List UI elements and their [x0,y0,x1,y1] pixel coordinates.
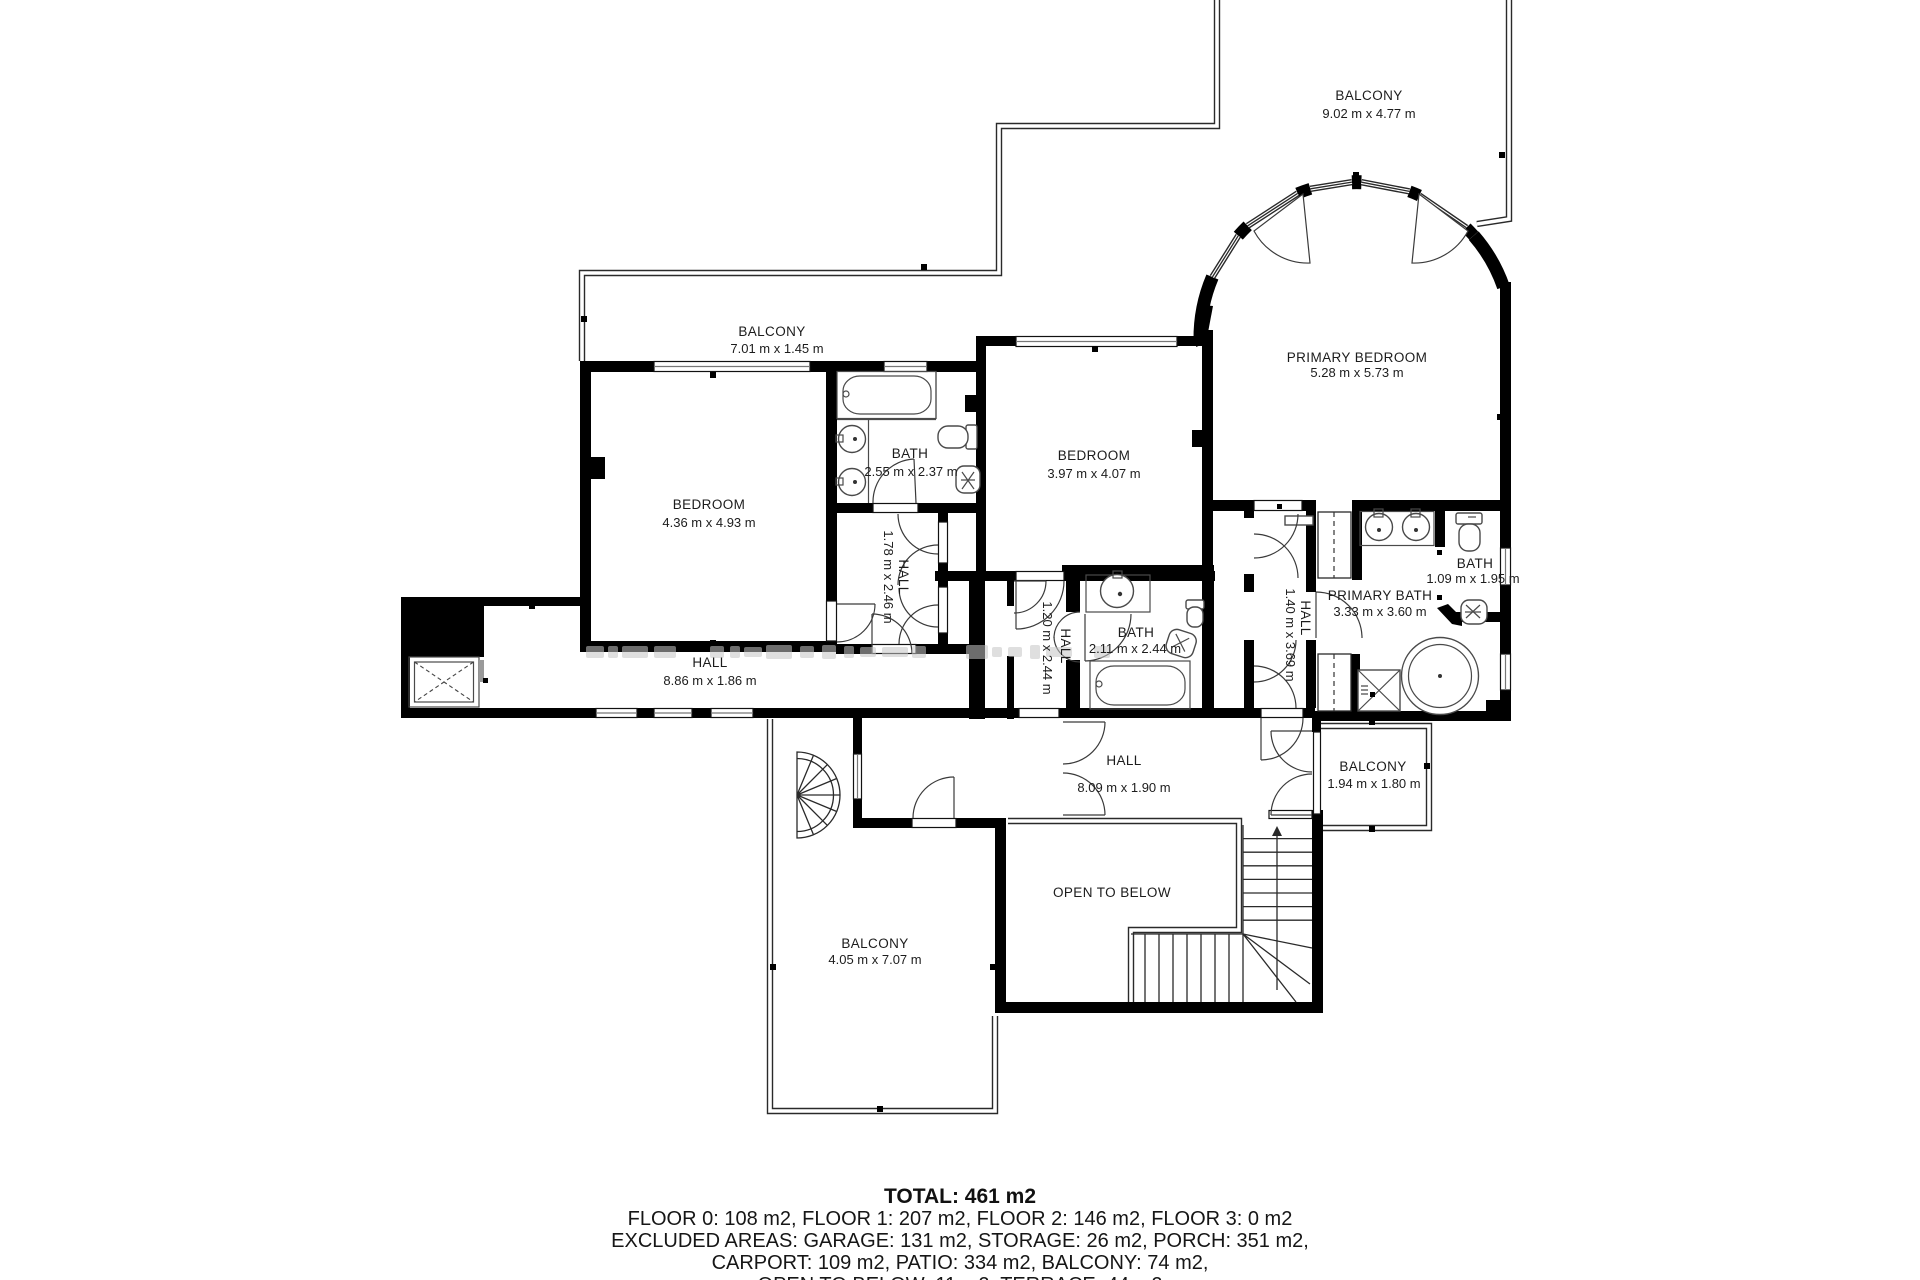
svg-text:3.33 m x 3.60 m: 3.33 m x 3.60 m [1333,604,1426,619]
svg-text:BATH: BATH [1457,556,1494,571]
svg-text:BATH: BATH [892,446,929,461]
svg-text:BEDROOM: BEDROOM [673,497,746,512]
svg-text:OPEN TO BELOW: 11 m2, TERRACE:: OPEN TO BELOW: 11 m2, TERRACE: 44 m2 [758,1274,1163,1280]
svg-text:HALL: HALL [692,655,727,670]
svg-text:PRIMARY BEDROOM: PRIMARY BEDROOM [1287,350,1428,365]
svg-text:FLOOR 0: 108 m2, FLOOR 1: 207: FLOOR 0: 108 m2, FLOOR 1: 207 m2, FLOOR … [628,1208,1293,1230]
svg-text:HALL: HALL [1058,628,1073,663]
svg-text:HALL: HALL [1106,753,1141,768]
svg-text:1.40 m x 3.69 m: 1.40 m x 3.69 m [1283,588,1298,681]
svg-text:CARPORT: 109 m2, PATIO: 334 m2: CARPORT: 109 m2, PATIO: 334 m2, BALCONY:… [712,1252,1209,1274]
svg-text:4.36 m x 4.93 m: 4.36 m x 4.93 m [662,515,755,530]
svg-text:BEDROOM: BEDROOM [1058,448,1131,463]
svg-text:TOTAL: 461 m2: TOTAL: 461 m2 [884,1185,1036,1208]
svg-text:BALCONY: BALCONY [1335,88,1402,103]
svg-text:1.94 m x 1.80 m: 1.94 m x 1.80 m [1327,776,1420,791]
svg-text:8.09 m x 1.90 m: 8.09 m x 1.90 m [1077,780,1170,795]
svg-text:2.55 m x 2.37 m: 2.55 m x 2.37 m [864,464,957,479]
svg-text:3.97 m x 4.07 m: 3.97 m x 4.07 m [1047,466,1140,481]
svg-text:1.20 m x 2.44 m: 1.20 m x 2.44 m [1040,601,1055,694]
svg-text:1.09 m x 1.95 m: 1.09 m x 1.95 m [1426,571,1519,586]
svg-text:BALCONY: BALCONY [841,936,908,951]
svg-text:7.01 m x 1.45 m: 7.01 m x 1.45 m [730,341,823,356]
svg-text:BALCONY: BALCONY [1339,759,1406,774]
svg-text:5.28 m x 5.73 m: 5.28 m x 5.73 m [1310,365,1403,380]
svg-text:OPEN TO BELOW: OPEN TO BELOW [1053,885,1171,900]
svg-text:BATH: BATH [1118,625,1155,640]
svg-text:HALL: HALL [1298,600,1313,635]
svg-text:9.02 m x 4.77 m: 9.02 m x 4.77 m [1322,106,1415,121]
svg-text:2.11 m x 2.44 m: 2.11 m x 2.44 m [1089,641,1181,656]
svg-text:8.86 m x 1.86 m: 8.86 m x 1.86 m [663,673,756,688]
svg-text:BALCONY: BALCONY [738,324,805,339]
svg-text:1.78 m x 2.46 m: 1.78 m x 2.46 m [881,530,896,623]
svg-text:PRIMARY BATH: PRIMARY BATH [1328,588,1433,603]
svg-text:EXCLUDED AREAS: GARAGE: 131 m2: EXCLUDED AREAS: GARAGE: 131 m2, STORAGE:… [611,1230,1309,1252]
svg-text:HALL: HALL [896,559,911,594]
svg-text:4.05 m x 7.07 m: 4.05 m x 7.07 m [828,952,921,967]
